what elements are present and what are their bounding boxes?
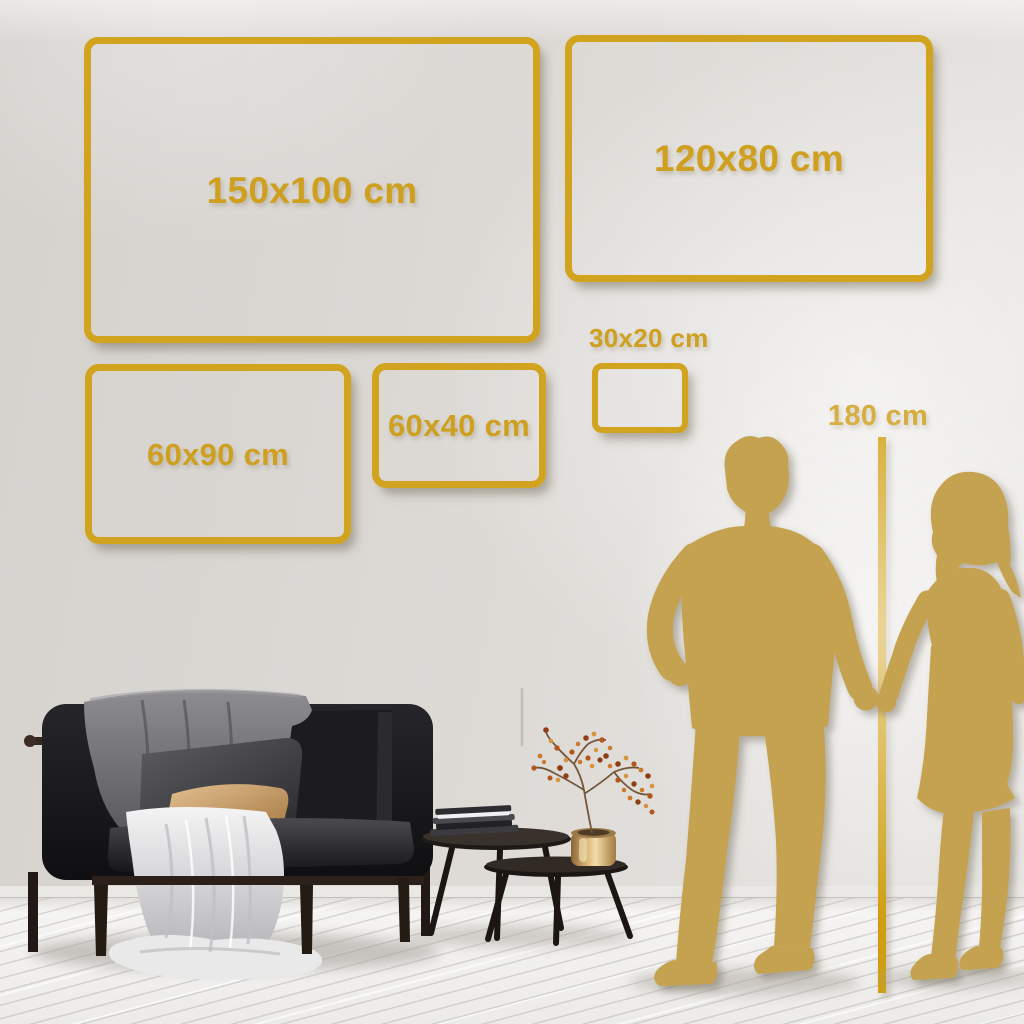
book-stack: [429, 805, 518, 837]
coffee-tables: [421, 805, 630, 943]
table-shadow: [402, 925, 634, 947]
size-comparison-scene: 150x100 cm 120x80 cm 60x90 cm 60x40 cm 3…: [0, 0, 1024, 1024]
dried-branch: [531, 727, 654, 833]
room-scene-art: [0, 0, 1024, 1024]
sofa: [24, 690, 433, 980]
brass-vase: [571, 828, 616, 866]
